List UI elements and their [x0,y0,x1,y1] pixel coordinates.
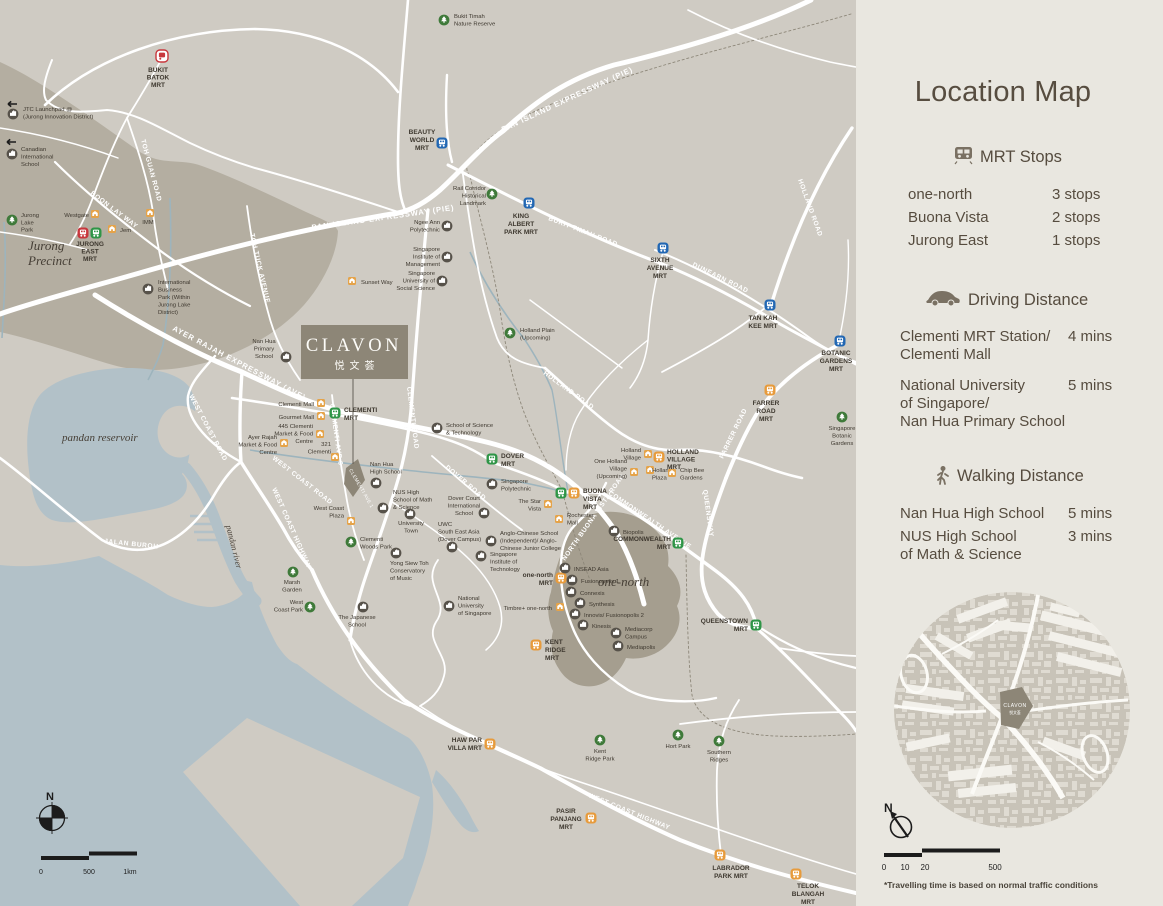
svg-text:Location Map: Location Map [915,76,1092,108]
svg-text:悦文荟: 悦文荟 [335,359,380,372]
svg-text:Walking Distance: Walking Distance [957,467,1084,485]
svg-text:MarshGarden: MarshGarden [282,580,302,594]
svg-text:CLAVON: CLAVON [1003,703,1026,709]
svg-text:of Math & Science: of Math & Science [900,546,1022,563]
svg-text:IMM: IMM [142,220,154,226]
svg-text:INSEAD Asia: INSEAD Asia [574,567,609,573]
svg-text:Driving Distance: Driving Distance [968,291,1088,309]
svg-text:Connexis: Connexis [580,591,605,597]
svg-text:Mediapolis: Mediapolis [627,645,655,651]
svg-text:NUS High School: NUS High School [900,528,1017,545]
svg-text:Hort Park: Hort Park [666,744,691,750]
svg-text:N: N [46,791,54,803]
svg-text:Clementi Mall: Clementi Mall [278,402,314,408]
svg-text:Nan HuaPrimarySchool: Nan HuaPrimarySchool [252,339,276,360]
svg-text:500: 500 [83,869,95,876]
svg-text:*Travelling time is based on n: *Travelling time is based on normal traf… [884,880,1098,890]
svg-text:SouthernRidges: SouthernRidges [707,750,731,764]
svg-text:CLAVON: CLAVON [306,336,402,356]
svg-text:of Singapore/: of Singapore/ [900,395,990,412]
svg-text:Westgate: Westgate [64,213,90,219]
svg-text:HAW PARVILLA MRT: HAW PARVILLA MRT [448,737,483,752]
svg-text:5 mins: 5 mins [1068,377,1112,394]
svg-text:Gourmet Mall: Gourmet Mall [279,415,314,421]
svg-text:Jem: Jem [120,228,131,234]
svg-text:Nan Hua Primary School: Nan Hua Primary School [900,413,1065,430]
svg-text:Clementi Mall: Clementi Mall [900,346,991,363]
svg-text:Kinesis: Kinesis [592,624,611,630]
svg-text:Holland Plain(Upcoming): Holland Plain(Upcoming) [520,328,555,342]
svg-text:3 stops: 3 stops [1052,186,1100,203]
svg-text:Chip BeeGardens: Chip BeeGardens [680,468,705,482]
svg-text:Buona Vista: Buona Vista [908,209,989,226]
svg-text:Clementi MRT Station/: Clementi MRT Station/ [900,328,1051,345]
svg-text:3 mins: 3 mins [1068,528,1112,545]
svg-text:Synthesis: Synthesis [589,602,615,608]
svg-text:Nan Hua High School: Nan Hua High School [900,505,1044,522]
svg-text:500: 500 [988,863,1002,872]
svg-text:Anglo-Chinese School(Independe: Anglo-Chinese School(Independent)/ Anglo… [500,531,562,552]
svg-text:1 stops: 1 stops [1052,232,1100,249]
svg-text:5 mins: 5 mins [1068,505,1112,522]
svg-text:one-north: one-north [908,186,972,203]
svg-text:Sunset Way: Sunset Way [361,280,393,286]
svg-text:20: 20 [921,863,930,872]
svg-text:Fusionopolis 1: Fusionopolis 1 [581,579,619,585]
svg-text:pandan reservoir: pandan reservoir [61,432,138,444]
svg-text:1km: 1km [123,869,136,876]
svg-text:MRT Stops: MRT Stops [980,148,1062,166]
svg-text:Ngee AnnPolytechnic: Ngee AnnPolytechnic [410,220,440,234]
svg-text:Jurong East: Jurong East [908,232,989,249]
svg-text:Biopolis: Biopolis [623,530,644,536]
svg-text:10: 10 [901,863,910,872]
svg-text:悦文荟: 悦文荟 [1009,710,1021,715]
svg-text:National University: National University [900,377,1026,394]
svg-text:Innovis/ Fusionopolis 2: Innovis/ Fusionopolis 2 [584,613,644,619]
svg-text:SingaporeInstitute ofTechnolog: SingaporeInstitute ofTechnology [490,552,520,573]
svg-text:LABRADORPARK MRT: LABRADORPARK MRT [712,865,749,880]
svg-text:4 mins: 4 mins [1068,328,1112,345]
svg-text:Timbre+ one-north: Timbre+ one-north [504,606,552,612]
svg-text:SingaporePolytechnic: SingaporePolytechnic [501,479,531,493]
svg-text:TAN KAHKEE MRT: TAN KAHKEE MRT [748,315,777,330]
svg-text:0: 0 [882,863,887,872]
svg-text:0: 0 [39,869,43,876]
svg-text:2 stops: 2 stops [1052,209,1100,226]
